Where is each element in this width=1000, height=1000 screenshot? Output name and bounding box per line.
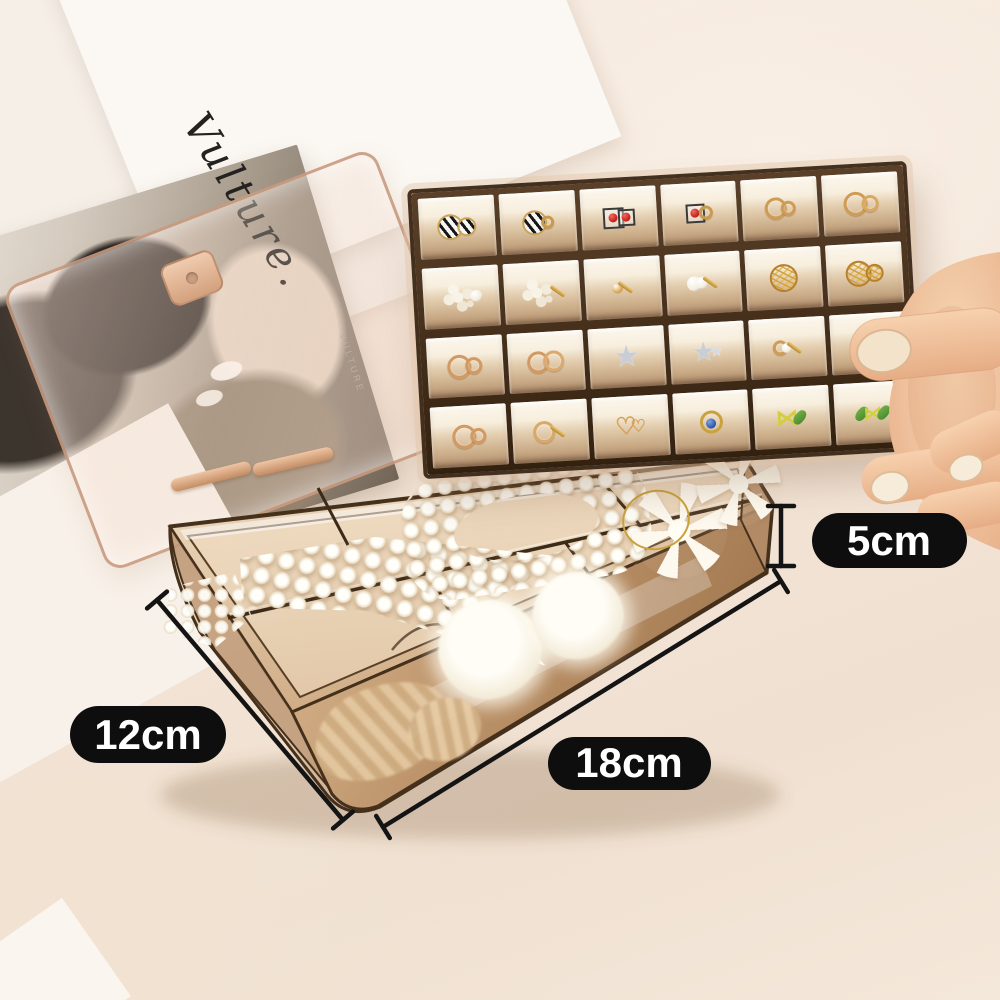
ring-icon bbox=[470, 427, 487, 444]
ring-icon bbox=[465, 357, 483, 375]
tray-cell-green-leaf-bow-earrings bbox=[833, 380, 912, 445]
tray-cell-blue-gem-ring bbox=[672, 390, 751, 455]
middle-finger bbox=[923, 403, 1000, 480]
heart-icon bbox=[630, 417, 646, 435]
star-icon bbox=[612, 341, 641, 372]
ring-icon bbox=[698, 205, 713, 220]
height-label: 5cm bbox=[847, 517, 931, 564]
height-dimension: 5cm bbox=[768, 506, 967, 568]
pin-icon bbox=[549, 285, 565, 298]
finger-nail bbox=[868, 468, 911, 505]
tray-grid bbox=[411, 165, 918, 475]
tray-cell-red-bead-square-earrings bbox=[579, 185, 658, 250]
tray-cell-red-bead-square-earring bbox=[660, 181, 739, 246]
tray-cell-gold-hoop-earrings bbox=[740, 176, 819, 241]
tray-cell-gold-knot-studs bbox=[583, 255, 662, 320]
dot-icon bbox=[870, 338, 880, 348]
sqdot-icon bbox=[617, 208, 635, 226]
lattice-icon bbox=[769, 263, 799, 293]
paper-corner bbox=[0, 898, 131, 1000]
tray-cell-gold-wire-ball-earring bbox=[744, 246, 823, 311]
palm-shading bbox=[908, 306, 996, 478]
ring-icon bbox=[541, 215, 555, 229]
earring-tray bbox=[407, 161, 923, 479]
ring-finger bbox=[914, 478, 1000, 540]
tray-cell-gold-drop-earrings bbox=[829, 311, 908, 376]
box-shadow bbox=[160, 751, 780, 839]
fur-pompom-clips bbox=[436, 572, 636, 712]
star-icon bbox=[709, 344, 723, 360]
width-label: 18cm bbox=[575, 739, 682, 786]
lattice-icon bbox=[865, 263, 884, 282]
tray-cell-gold-wire-ball-earrings bbox=[825, 241, 904, 306]
tray-cell-pearl-cluster-earrings bbox=[422, 264, 501, 329]
tray-cell-pearl-cluster-stud bbox=[502, 260, 581, 325]
dot-icon bbox=[470, 290, 483, 303]
tray-cell-yellow-bow-earrings bbox=[752, 385, 831, 450]
tray-cell-gold-ring-pair bbox=[506, 329, 585, 394]
gemring-icon bbox=[699, 410, 723, 434]
ring-icon bbox=[861, 194, 879, 212]
tray-cell-gold-pearl-dangle-earrings bbox=[748, 315, 827, 380]
ring-icon bbox=[543, 350, 565, 372]
cluster-icon bbox=[452, 291, 464, 303]
ring-icon bbox=[533, 420, 556, 443]
tray-cell-striped-hoop-earring bbox=[498, 190, 577, 255]
tray-cell-silver-star-earring bbox=[587, 325, 666, 390]
striped-icon bbox=[457, 217, 477, 237]
tray-cell-pearl-studs bbox=[664, 250, 743, 315]
tray-cell-gold-heart-earrings bbox=[591, 394, 670, 459]
tray-cell-striped-hoop-earrings bbox=[418, 195, 497, 260]
product-photo-scene: Vulture. VULTURE bbox=[0, 0, 1000, 1000]
tray-cell-gold-band-rings bbox=[430, 404, 509, 469]
tray-cell-gold-rings bbox=[426, 334, 505, 399]
finger-nail bbox=[946, 450, 987, 486]
tray-cell-silver-star-earrings bbox=[668, 320, 747, 385]
tray-cell-gold-hoops bbox=[821, 171, 900, 236]
cluster-icon bbox=[531, 287, 543, 299]
ring-icon bbox=[780, 200, 796, 216]
tray-cell-twisted-gold-ring bbox=[510, 399, 589, 464]
